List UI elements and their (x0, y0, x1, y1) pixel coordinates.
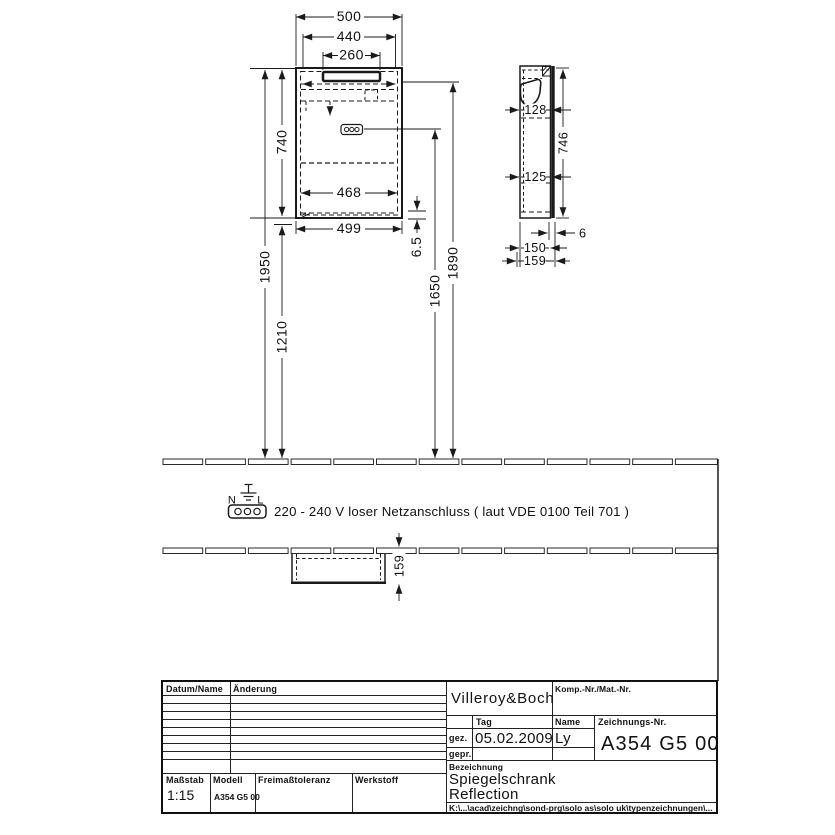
model-label: Modell (213, 775, 243, 785)
name-col-label: Name (555, 717, 580, 727)
dim-440: 440 (337, 28, 362, 44)
dim-499: 499 (337, 220, 362, 236)
dim-1890: 1890 (444, 247, 460, 280)
dim-6: 6 (579, 226, 586, 240)
socket-outlet-icon (229, 505, 267, 518)
date-col-label: Tag (476, 717, 492, 727)
material-label: Werkstoff (355, 775, 398, 785)
file-path: K:\...\acad\zeichng\sond-prg\solo as\sol… (449, 803, 713, 813)
tolerance-label: Freimaßtoleranz (258, 775, 331, 785)
dim-468: 468 (337, 184, 362, 200)
dim-500: 500 (337, 8, 362, 24)
model-value: A354 G5 00 (214, 792, 260, 802)
light-fixture (323, 72, 380, 81)
dim-159-side: 159 (524, 254, 546, 268)
revision-col-date-name: Datum/Name (166, 684, 223, 694)
drawing-nr-value: A354 G5 00 (601, 733, 720, 756)
scale-value: 1:15 (167, 787, 194, 803)
power-note: 220 - 240 V loser Netzanschluss ( laut V… (274, 504, 629, 519)
checked-label: gepr. (449, 749, 472, 759)
drawn-date: 05.02.2009 (475, 730, 553, 747)
cabinet-top-view (291, 554, 386, 583)
dim-159-plan: 159 (392, 555, 406, 577)
brand-logo: Villeroy&Boch (451, 690, 555, 707)
dim-6-5: 6.5 (408, 237, 424, 258)
technical-drawing-sheet: 500 440 260 740 1950 1210 1890 (0, 0, 835, 835)
drawn-label: gez. (449, 733, 467, 743)
dim-740: 740 (273, 130, 289, 155)
dim-128: 128 (524, 103, 546, 117)
earth-ground-icon (241, 485, 257, 501)
designation-line2: Reflection (449, 786, 519, 803)
wall-section-lower (163, 548, 717, 554)
dim-260: 260 (339, 47, 364, 63)
power-connection: N L 220 - 240 V loser Netzanschluss ( la… (228, 485, 629, 520)
comp-nr-label: Komp.-Nr./Mat.-Nr. (555, 684, 631, 694)
wall-section-upper (163, 459, 717, 465)
scale-label: Maßstab (166, 775, 204, 785)
dim-1650: 1650 (426, 275, 442, 308)
drawn-name: Ly (555, 730, 571, 747)
dim-746: 746 (556, 132, 570, 154)
dim-1210: 1210 (273, 321, 289, 354)
side-view (520, 66, 553, 218)
title-block: Datum/Name Änderung Maßstab 1:15 Modell … (161, 680, 718, 814)
side-view-dimensions: 128 125 746 6 150 159 (502, 68, 586, 268)
dim-1950: 1950 (256, 251, 272, 284)
top-view-dimension-159: 159 (392, 533, 406, 601)
revision-col-change: Änderung (233, 684, 277, 694)
dim-150: 150 (524, 241, 546, 255)
drawing-nr-label: Zeichnungs-Nr. (598, 717, 666, 727)
dim-125: 125 (524, 170, 546, 184)
